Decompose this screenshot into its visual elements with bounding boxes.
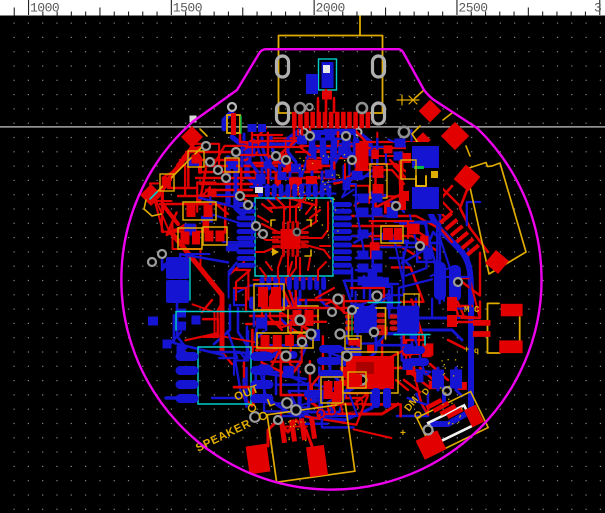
svg-text:2000: 2000 <box>316 1 345 16</box>
svg-text:+: + <box>400 428 406 439</box>
svg-text:1000: 1000 <box>30 1 59 16</box>
svg-text:3: 3 <box>594 1 602 16</box>
svg-text:C: C <box>474 305 480 315</box>
svg-text:+: + <box>464 344 469 354</box>
svg-text:q: q <box>474 346 479 355</box>
svg-text:1500: 1500 <box>173 1 202 16</box>
svg-text:2500: 2500 <box>458 1 487 16</box>
svg-text:M: M <box>464 305 469 315</box>
